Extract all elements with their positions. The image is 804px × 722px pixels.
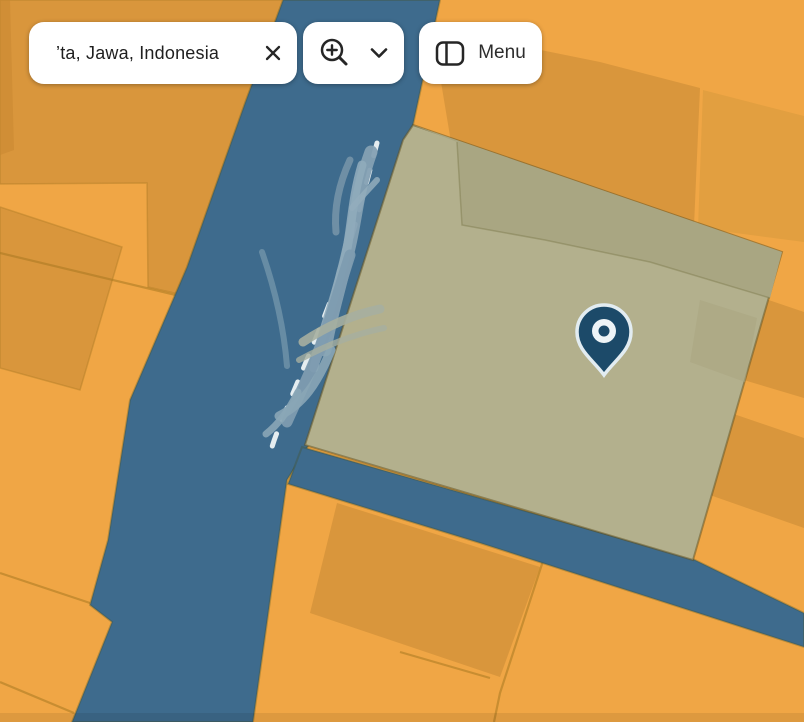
clear-search-button[interactable] [257, 37, 289, 69]
search-input-value[interactable]: ’ta, Jawa, Indonesia [56, 43, 257, 64]
map-canvas[interactable] [0, 0, 804, 722]
menu-button-label: Menu [478, 42, 526, 64]
menu-button[interactable]: Menu [419, 22, 542, 84]
close-icon [263, 43, 283, 63]
search-box[interactable]: ’ta, Jawa, Indonesia [29, 22, 297, 84]
sidebar-panel-icon [435, 40, 465, 67]
zoom-control[interactable] [303, 22, 404, 84]
chevron-down-icon [370, 47, 388, 59]
zoom-options-button[interactable] [368, 45, 390, 61]
zoom-in-button[interactable] [317, 35, 353, 71]
bottom-shade [0, 713, 804, 722]
magnifier-plus-icon [319, 37, 351, 69]
